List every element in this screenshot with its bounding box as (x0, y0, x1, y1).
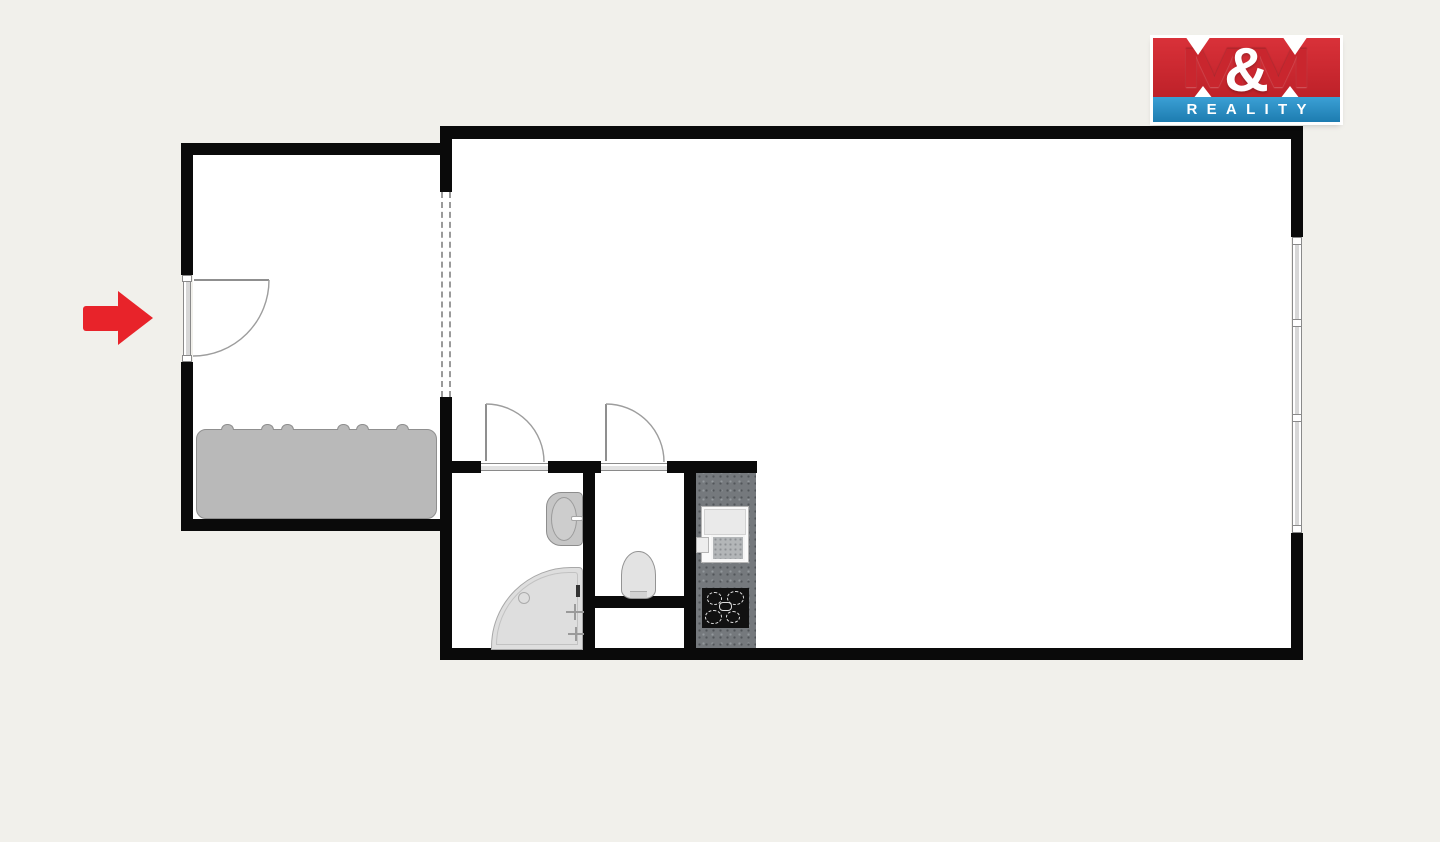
window-track (1292, 237, 1302, 533)
entrance-door-jamb-top (182, 275, 192, 282)
right-wall-lower (1291, 533, 1303, 660)
logo-top-block: M & M (1153, 38, 1340, 97)
divider-wall-top-stub (440, 139, 452, 192)
kitchen-sink-drainer (704, 509, 746, 535)
window-mullion-1 (1292, 319, 1302, 327)
burner (726, 611, 740, 623)
logo-m-notch-icon (1185, 38, 1211, 55)
basin-faucet (571, 516, 583, 521)
logo-reality-text: REALITY (1177, 101, 1316, 118)
hall-left-wall-lower (181, 362, 193, 531)
burner (705, 610, 722, 624)
window-jamb-top (1292, 237, 1302, 245)
bathroom-door-frame (481, 463, 548, 471)
agency-logo: M & M REALITY (1153, 38, 1340, 122)
wardrobe-knob (221, 424, 234, 430)
hall-top-wall (181, 143, 452, 155)
divider-wall-bottom (440, 397, 452, 648)
toilet-base (630, 591, 647, 598)
main-top-wall (440, 126, 1303, 139)
right-wall-upper (1291, 126, 1303, 237)
wardrobe-knob (261, 424, 274, 430)
cooktop (702, 588, 749, 628)
toilet (621, 551, 656, 599)
wardrobe-knob (337, 424, 350, 430)
wardrobe-knob (281, 424, 294, 430)
passage-dashed-line-left (441, 192, 443, 397)
entrance-door-jamb-bottom (182, 355, 192, 362)
bath-top-wall-left (452, 461, 481, 473)
entrance-arrow-head (118, 291, 153, 345)
logo-bottom-bar: REALITY (1153, 97, 1340, 122)
kitchen-sink-basin (711, 535, 745, 561)
logo-ampersand: & (1224, 43, 1269, 98)
hall-bottom-wall (181, 519, 452, 531)
wc-door-frame (601, 463, 667, 471)
kitchen-wall (684, 461, 696, 648)
cooktop-control (719, 602, 732, 611)
logo-m-notch-icon (1280, 86, 1300, 97)
hall-left-wall-upper (181, 143, 193, 275)
bath-top-wall-right (667, 461, 757, 473)
wardrobe (196, 429, 437, 519)
entrance-arrow-body (83, 306, 120, 331)
logo-m-notch-icon (1193, 86, 1213, 97)
wardrobe-knob (396, 424, 409, 430)
window-mullion-2 (1292, 414, 1302, 422)
logo-m-notch-icon (1282, 38, 1308, 55)
bath-wc-divider-wall (583, 461, 595, 648)
bath-drain (518, 592, 530, 604)
window-jamb-bottom (1292, 525, 1302, 533)
wardrobe-knob (356, 424, 369, 430)
kitchen-sink-faucet (696, 537, 709, 553)
floorplan-image: M & M REALITY (0, 0, 1440, 842)
entrance-door-frame (183, 276, 191, 361)
passage-dashed-line-right (449, 192, 451, 397)
